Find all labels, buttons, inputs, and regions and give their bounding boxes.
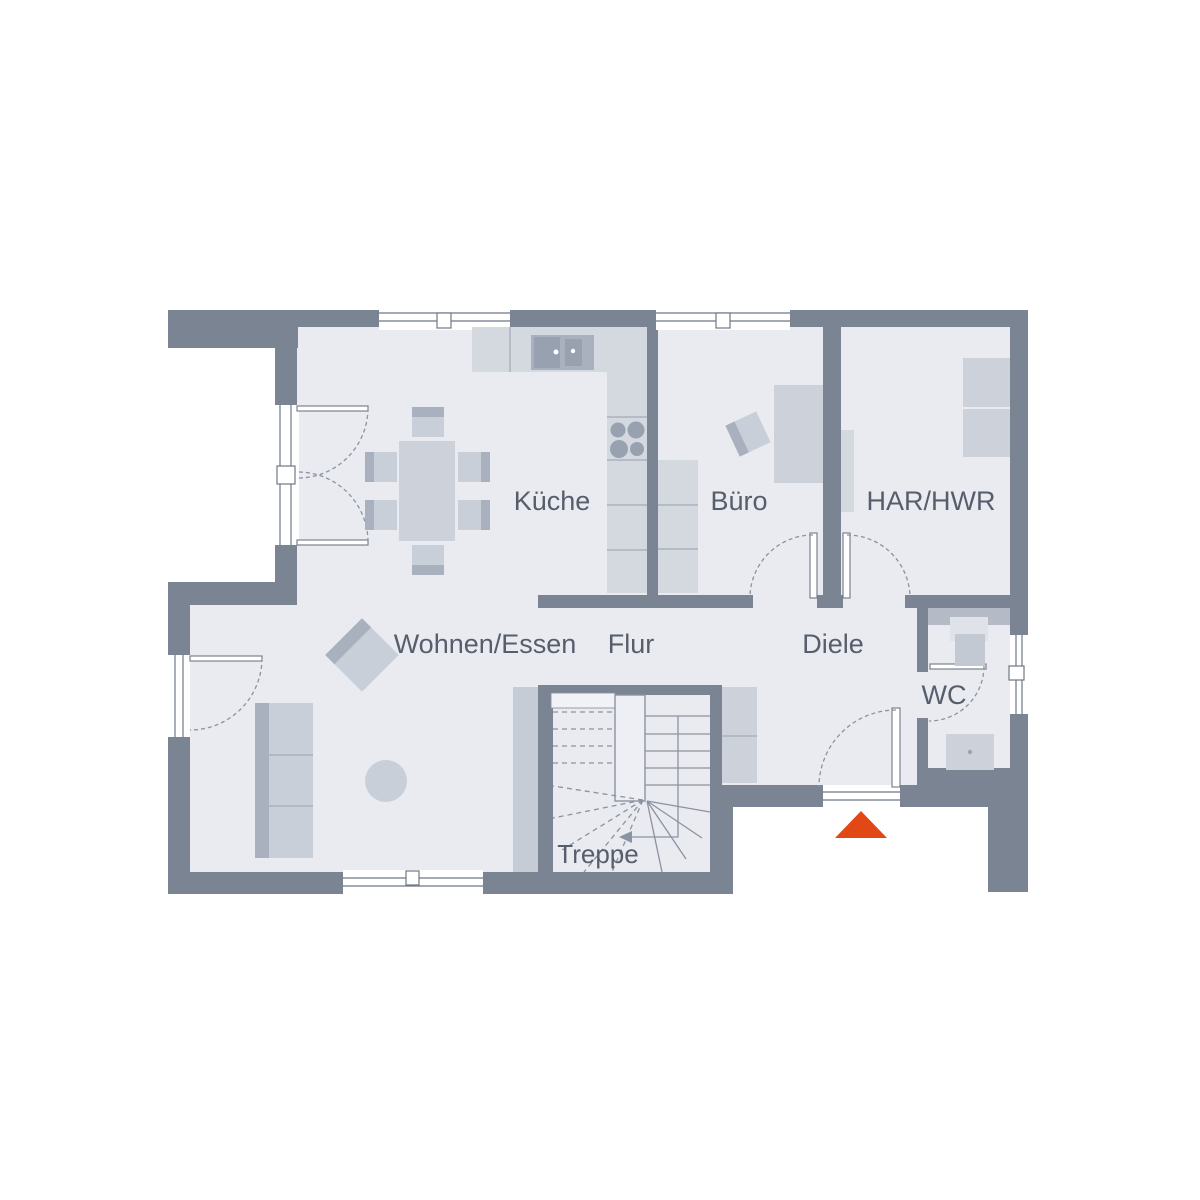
coffee-table [365, 760, 407, 802]
room-label-buero: Büro [710, 486, 767, 516]
wall-porch-right-column [988, 785, 1028, 892]
stair-void [615, 695, 645, 801]
wall-kueche-buero [647, 327, 658, 608]
wall-kitchen-left-upper [275, 327, 297, 407]
wall-buero-har [823, 327, 841, 595]
window-wc-right [1009, 635, 1028, 714]
room-label-wc: WC [922, 680, 967, 710]
wall-entrance-left [722, 785, 823, 807]
wall-left-upper-seg [168, 605, 190, 655]
dining-table [399, 441, 455, 541]
room-label-wohnen-essen: Wohnen/Essen [394, 629, 577, 659]
window-kitchen-top [379, 306, 510, 330]
wall-wc-bottom [928, 768, 1010, 785]
wc-shower [946, 734, 994, 770]
window-buero-top [656, 306, 790, 330]
floor-plan-canvas: Küche Büro HAR/HWR Wohnen/Essen Flur Die… [0, 0, 1200, 1200]
wall-left-lower-seg [168, 737, 190, 872]
wc-toilet [955, 634, 985, 666]
dining-chair-right-1 [458, 452, 490, 482]
diele-wardrobe [722, 687, 757, 783]
wall-flur-top [538, 595, 753, 608]
room-label-treppe: Treppe [557, 839, 638, 869]
dining-chair-right-2 [458, 500, 490, 530]
wall-kitchen-left-lower [275, 543, 297, 582]
wall-left-step [168, 582, 297, 605]
kitchen-counter-right [607, 372, 647, 593]
wall-flur-stub [817, 595, 843, 608]
wall-wc-left-upper [917, 605, 928, 672]
buero-shelf [658, 460, 698, 593]
desk [774, 385, 823, 483]
floor-plan-svg: Küche Büro HAR/HWR Wohnen/Essen Flur Die… [0, 0, 1200, 1200]
entrance-marker-icon [835, 811, 887, 838]
wall-stair-left [538, 685, 553, 872]
stair-landing [551, 693, 615, 708]
sofa [255, 703, 313, 858]
room-label-flur: Flur [608, 629, 655, 659]
window-living-bottom [343, 870, 483, 894]
room-label-diele: Diele [802, 629, 864, 659]
wall-entrance-right [900, 785, 988, 807]
stair-shaft [513, 687, 538, 872]
dining-chair-left-2 [365, 500, 397, 530]
washer [963, 358, 1010, 407]
har-cabinet [841, 430, 854, 512]
room-label-har-hwr: HAR/HWR [867, 486, 996, 516]
dryer [963, 409, 1010, 457]
dining-chair-left-1 [365, 452, 397, 482]
dining-chair-bottom [412, 545, 444, 575]
room-label-kueche: Küche [514, 486, 591, 516]
wall-wc-left-lower [917, 718, 928, 785]
dining-chair-top [412, 407, 444, 437]
